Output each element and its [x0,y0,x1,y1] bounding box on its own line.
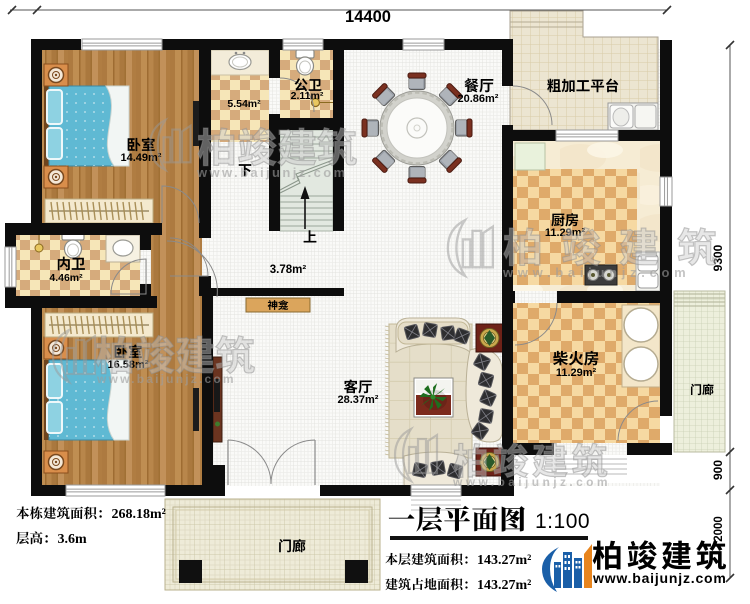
svg-text:2.11m²: 2.11m² [291,90,324,102]
svg-text:1:100: 1:100 [535,510,590,533]
svg-text:143.27m²: 143.27m² [477,553,531,568]
svg-text:143.27m²: 143.27m² [477,578,531,593]
svg-text:20.86m²: 20.86m² [458,93,499,105]
svg-text:3.78m²: 3.78m² [270,264,307,276]
svg-text:4.46m²: 4.46m² [49,272,83,284]
svg-text:www.baijunjz.com: www.baijunjz.com [196,165,348,180]
svg-text:268.18m²: 268.18m² [112,507,166,522]
svg-text:5.54m²: 5.54m² [227,98,261,110]
svg-text:www.baijunjz.com: www.baijunjz.com [452,475,611,489]
svg-text:www.baijunjz.com: www.baijunjz.com [502,265,690,280]
svg-text:14400: 14400 [345,8,391,26]
svg-text:www.baijunjz.com: www.baijunjz.com [592,570,727,586]
svg-text:3.6m: 3.6m [58,532,88,547]
svg-text:www.baijunjz.com: www.baijunjz.com [96,372,236,386]
svg-text:2000: 2000 [713,516,725,542]
svg-text:11.29m²: 11.29m² [556,367,597,379]
svg-text:28.37m²: 28.37m² [338,394,379,406]
svg-text:900: 900 [711,460,725,480]
